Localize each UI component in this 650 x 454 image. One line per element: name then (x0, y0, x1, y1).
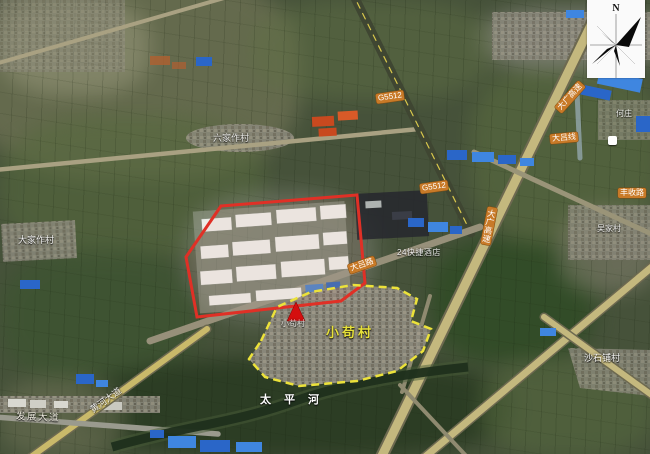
map-graphics (0, 0, 650, 454)
road-label-fazhan: 发展大道 (16, 412, 60, 423)
compass-rose: N (587, 0, 645, 78)
satellite-map: 小苟村 小苟村 六家作村 大家作村 吴家村 沙石铺村 何庄 太平河 发展大道 黄… (0, 0, 650, 454)
village-label-main: 小苟村 (326, 326, 374, 339)
village-label-wujia: 吴家村 (597, 225, 621, 233)
village-label-main-map: 小苟村 (281, 320, 305, 328)
dark-factory-zone (355, 190, 429, 240)
hotel-label: 24快捷酒店 (397, 249, 441, 257)
village-label-liujiazuo: 六家作村 (213, 134, 249, 143)
compass-north-label: N (612, 3, 620, 14)
village-label-hezhuang: 何庄 (616, 110, 632, 118)
village-label-dajiazuo: 大家作村 (18, 236, 54, 245)
poi-icon (608, 136, 617, 145)
river-label: 太平河 (260, 395, 332, 406)
village-label-shashipu: 沙石铺村 (584, 354, 620, 363)
compass-graphic: N (587, 0, 645, 78)
road-badge-fengshou: 丰收路 (618, 188, 646, 198)
